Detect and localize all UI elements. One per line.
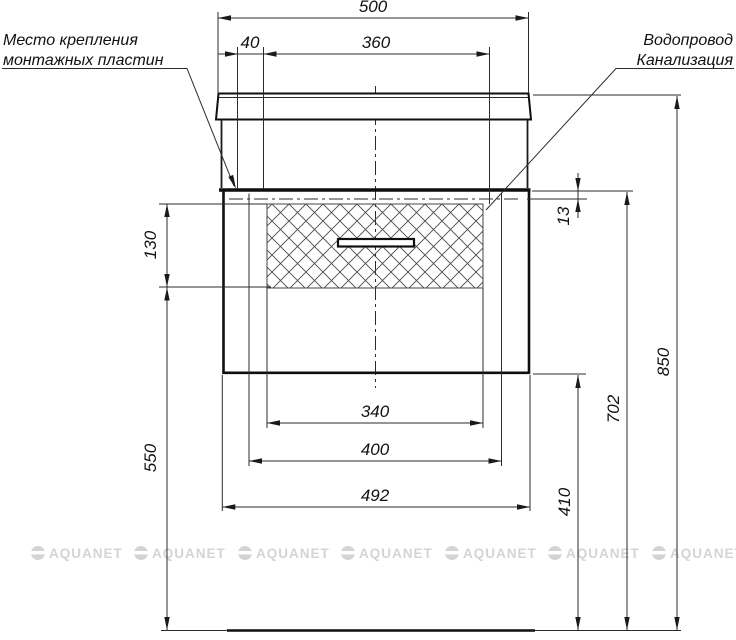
- dimension-40-360: 40 360: [218, 33, 490, 57]
- mounting-leader-line: [2, 69, 234, 187]
- dim-label-340: 340: [361, 402, 390, 421]
- watermark-text: AQUANET: [359, 546, 433, 561]
- annotation-mounting-plates: Место крепления монтажных пластин: [2, 32, 236, 189]
- dimension-410: 410: [555, 375, 581, 630]
- dimension-492: 492: [222, 486, 530, 510]
- dim-label-13: 13: [554, 206, 573, 225]
- dimension-340: 340: [267, 402, 483, 426]
- mounting-label-line2: монтажных пластин: [3, 52, 164, 69]
- mounting-label-line1: Место крепления: [3, 32, 138, 49]
- annotation-plumbing: Водопровод Канализация: [486, 32, 734, 210]
- dim-label-500: 500: [359, 0, 388, 16]
- dim-label-400: 400: [361, 440, 390, 459]
- dim-label-850: 850: [654, 347, 673, 376]
- watermark-text: AQUANET: [152, 546, 226, 561]
- watermark-text: AQUANET: [49, 546, 123, 561]
- dim-label-550: 550: [141, 443, 160, 472]
- dimension-702: 702: [604, 192, 630, 630]
- watermark-text: AQUANET: [670, 546, 736, 561]
- dim-label-130: 130: [141, 230, 160, 259]
- watermark-text: AQUANET: [566, 546, 640, 561]
- watermark-row: AQUANET AQUANET AQUANET AQUANET AQUANET …: [29, 546, 736, 561]
- plumbing-label-line2: Канализация: [636, 52, 733, 69]
- drawer-handle: [338, 239, 414, 247]
- dim-label-40: 40: [241, 33, 260, 52]
- cabinet-body: [219, 190, 531, 373]
- drawing-svg: AQUANET AQUANET AQUANET AQUANET AQUANET …: [0, 0, 736, 640]
- dim-label-360: 360: [362, 33, 391, 52]
- dimension-500: 500: [218, 0, 529, 21]
- technical-drawing-vanity-cabinet: AQUANET AQUANET AQUANET AQUANET AQUANET …: [0, 0, 736, 640]
- dimension-130-550: 130 550: [141, 204, 170, 630]
- watermark-text: AQUANET: [463, 546, 537, 561]
- watermark-text: AQUANET: [256, 546, 330, 561]
- plumbing-label-line1: Водопровод: [643, 32, 733, 49]
- mounting-leader-arrow: [228, 175, 236, 189]
- dim-label-702: 702: [604, 394, 623, 423]
- dimension-400: 400: [249, 440, 502, 464]
- dim-label-410: 410: [555, 487, 574, 516]
- dim-label-492: 492: [361, 486, 390, 505]
